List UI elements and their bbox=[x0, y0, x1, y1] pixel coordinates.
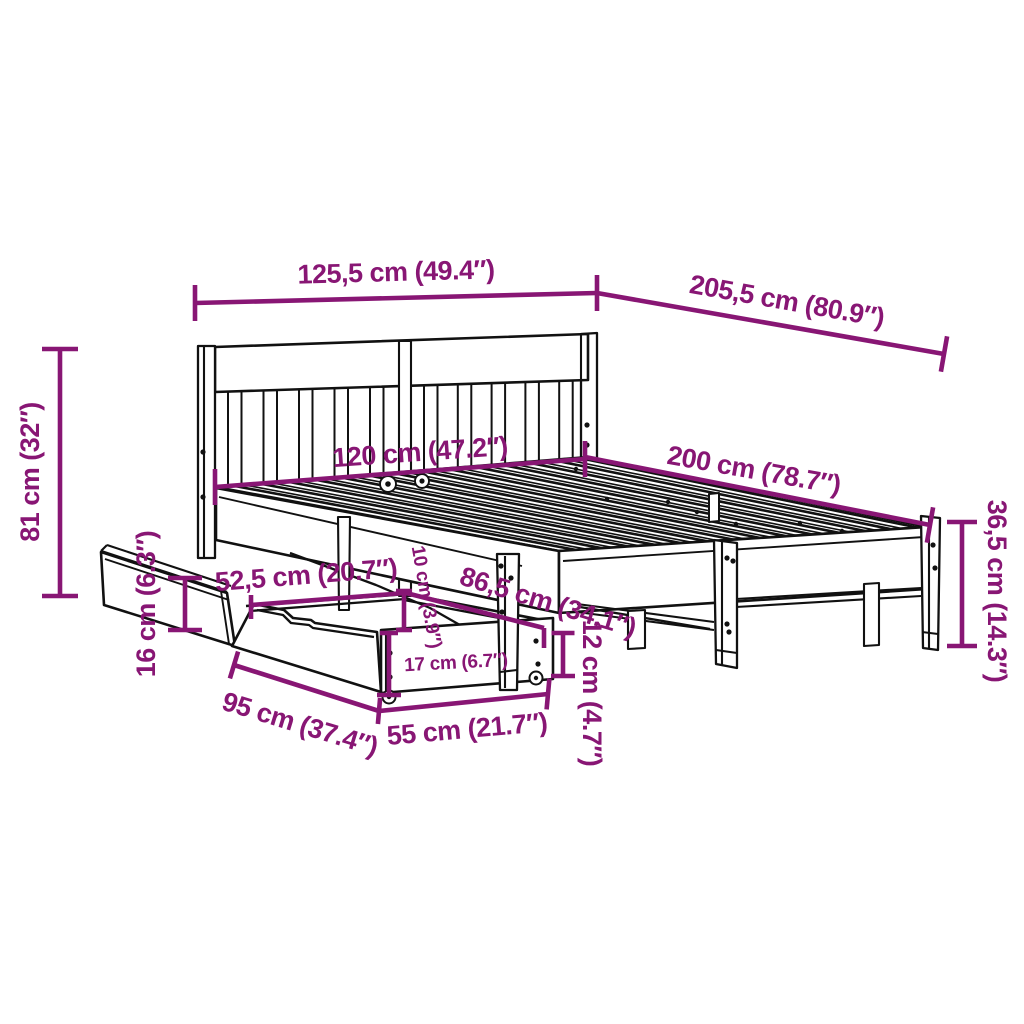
svg-text:12 cm (4.7″): 12 cm (4.7″) bbox=[577, 620, 607, 767]
svg-text:81 cm (32″): 81 cm (32″) bbox=[15, 402, 45, 542]
svg-text:36,5 cm (14.3″): 36,5 cm (14.3″) bbox=[982, 500, 1012, 683]
svg-text:125,5 cm (49.4″): 125,5 cm (49.4″) bbox=[297, 254, 495, 289]
svg-text:16 cm (6.3″): 16 cm (6.3″) bbox=[131, 531, 161, 678]
